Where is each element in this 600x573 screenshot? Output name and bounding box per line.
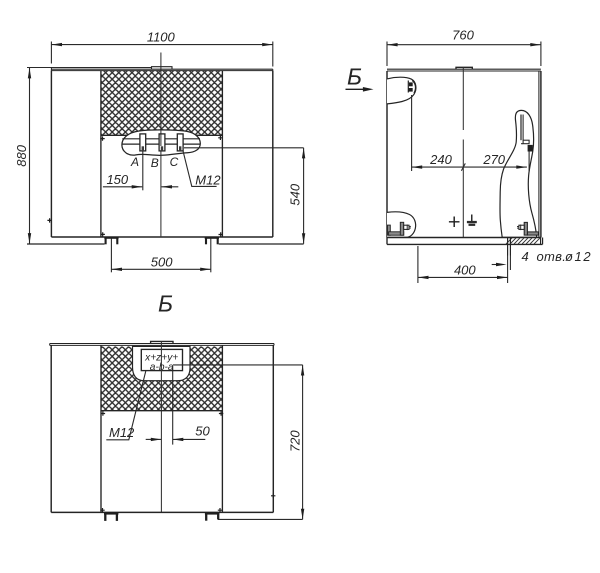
svg-text:880: 880 (14, 144, 29, 166)
svg-text:Б: Б (347, 63, 362, 89)
svg-text:500: 500 (151, 255, 173, 270)
svg-text:1100: 1100 (147, 30, 176, 45)
svg-text:A: A (130, 155, 139, 169)
svg-text:400: 400 (454, 263, 476, 278)
svg-text:760: 760 (452, 28, 474, 43)
svg-text:270: 270 (482, 152, 505, 167)
svg-text:B: B (151, 156, 159, 170)
svg-text:M12: M12 (195, 173, 221, 188)
svg-text:240: 240 (429, 152, 452, 167)
svg-text:M12: M12 (109, 425, 135, 440)
svg-text:540: 540 (288, 183, 303, 205)
svg-text:150: 150 (106, 172, 128, 187)
svg-text:a-b-a: a-b-a (150, 362, 174, 373)
svg-text:50: 50 (195, 424, 210, 439)
svg-text:720: 720 (288, 430, 303, 452)
svg-text:C: C (170, 155, 179, 169)
svg-text:Б: Б (158, 291, 173, 317)
